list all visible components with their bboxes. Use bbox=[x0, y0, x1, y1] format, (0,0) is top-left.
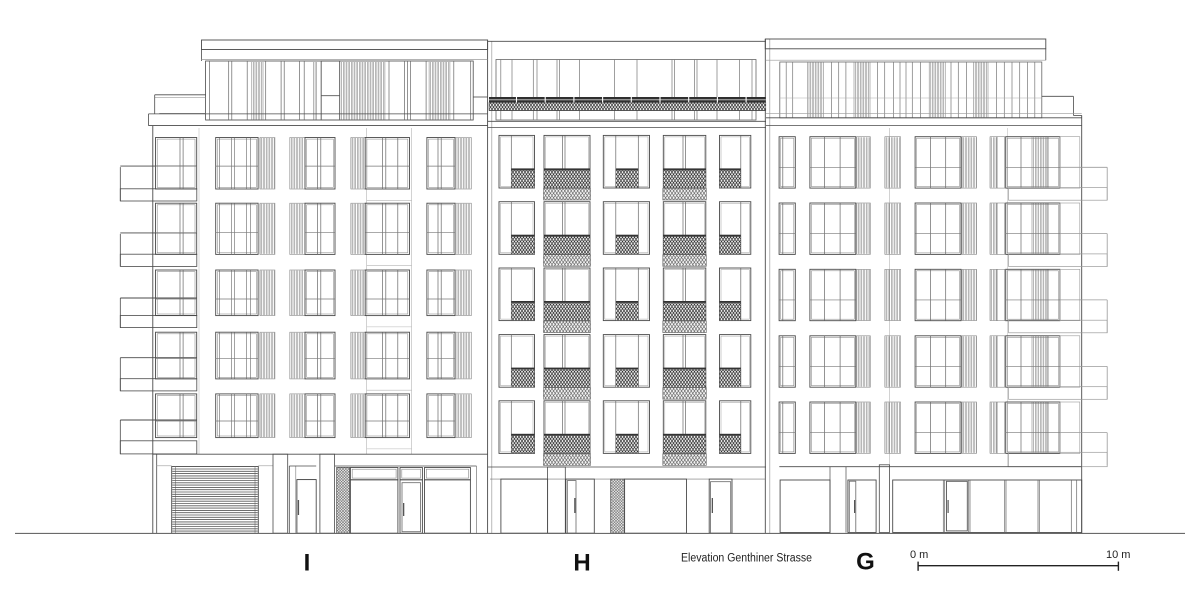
svg-text:H: H bbox=[573, 550, 590, 577]
svg-text:G: G bbox=[856, 549, 875, 576]
svg-text:Elevation Genthiner Strasse: Elevation Genthiner Strasse bbox=[681, 553, 812, 565]
svg-text:10 m: 10 m bbox=[1106, 549, 1130, 561]
svg-text:0 m: 0 m bbox=[910, 549, 928, 561]
svg-text:I: I bbox=[304, 550, 311, 577]
